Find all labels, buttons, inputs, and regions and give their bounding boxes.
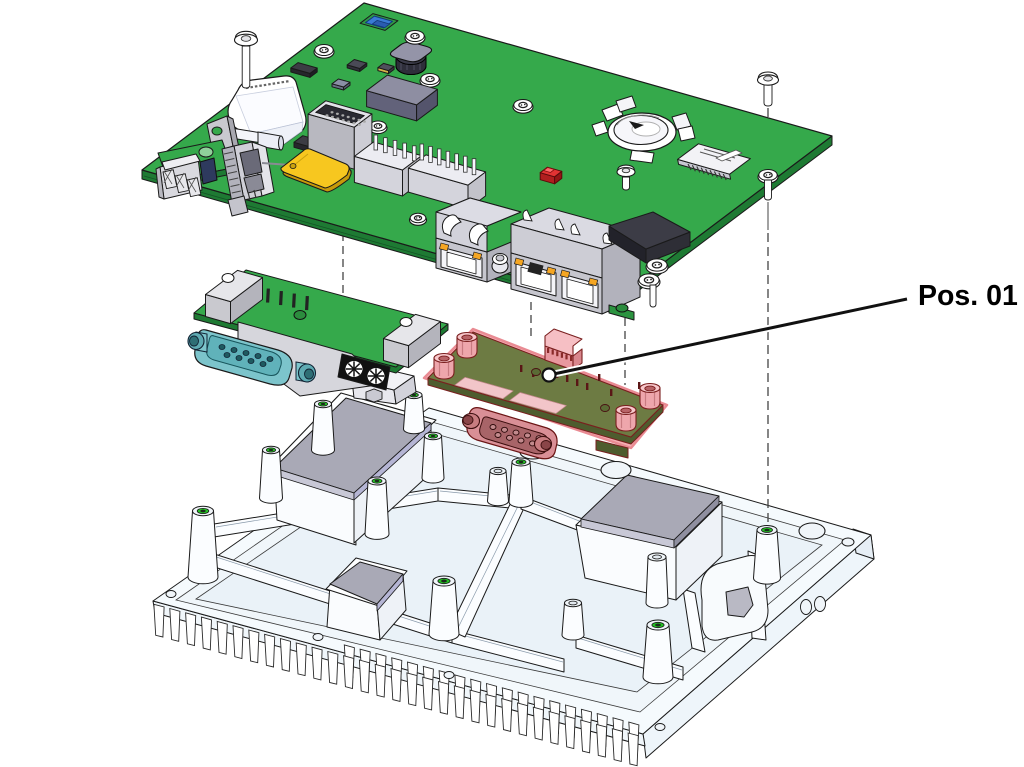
svg-text:Pos. 01: Pos. 01 bbox=[918, 280, 1018, 312]
